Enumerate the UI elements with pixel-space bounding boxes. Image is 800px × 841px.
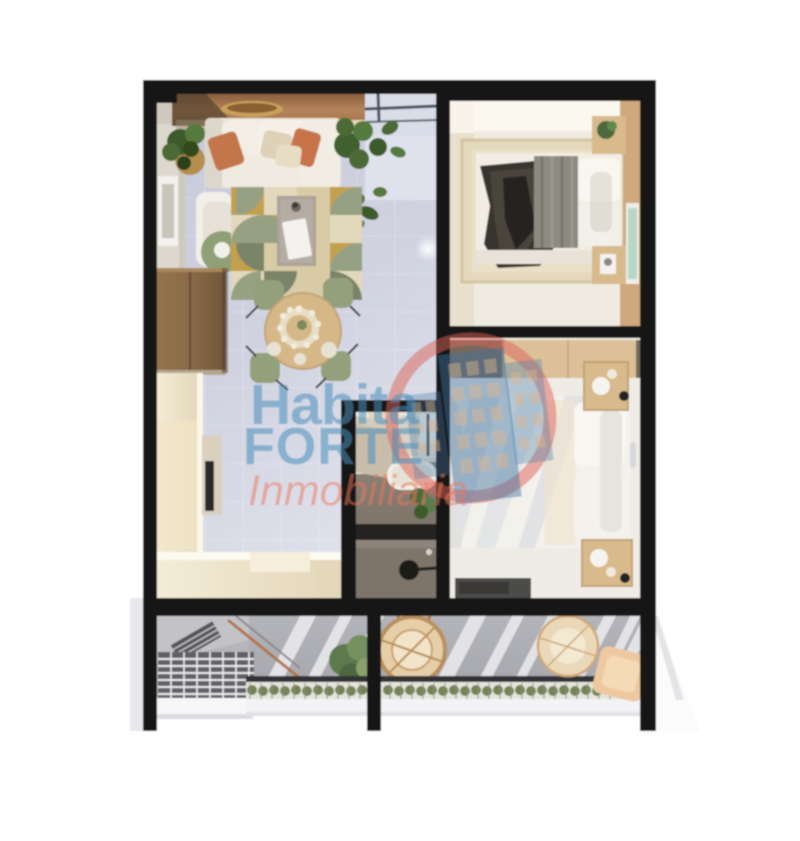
svg-text:Inmobiliaria: Inmobiliaria — [248, 467, 468, 515]
